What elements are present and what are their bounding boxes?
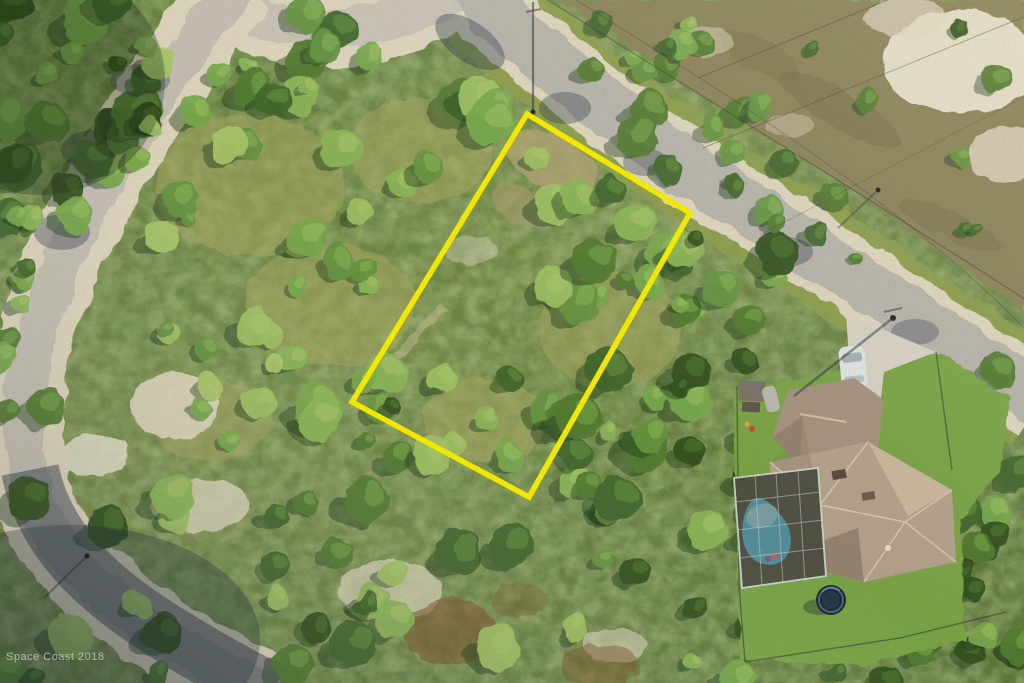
aerial-photo-lot-listing: Space Coast 2018	[0, 0, 1024, 683]
photo-grain	[0, 0, 1024, 683]
aerial-photo: Space Coast 2018	[0, 0, 1024, 683]
watermark-text: Space Coast 2018	[6, 651, 105, 663]
